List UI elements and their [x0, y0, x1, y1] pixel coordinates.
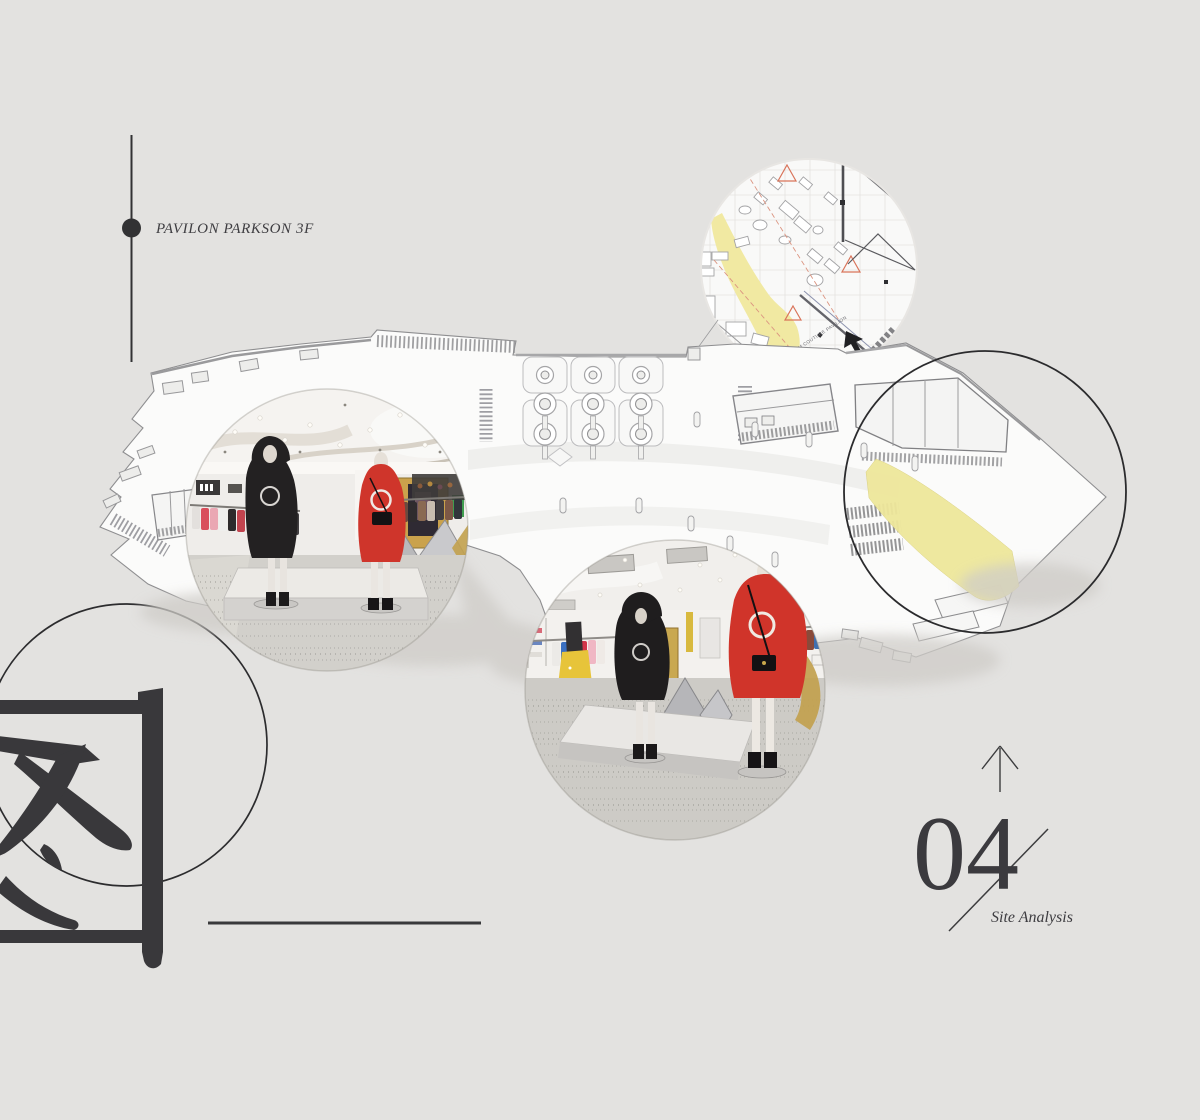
header-dot: [122, 219, 141, 238]
hanzi-character-text: 图: [40, 823, 48, 832]
presentation-slide: ENTRANCE FROM COUTURE PAVILION: [0, 0, 1200, 1120]
page-title: PAVILON PARKSON 3F: [155, 221, 314, 237]
section-caption: Site Analysis: [991, 909, 1073, 926]
section-number: 04: [913, 795, 1019, 912]
